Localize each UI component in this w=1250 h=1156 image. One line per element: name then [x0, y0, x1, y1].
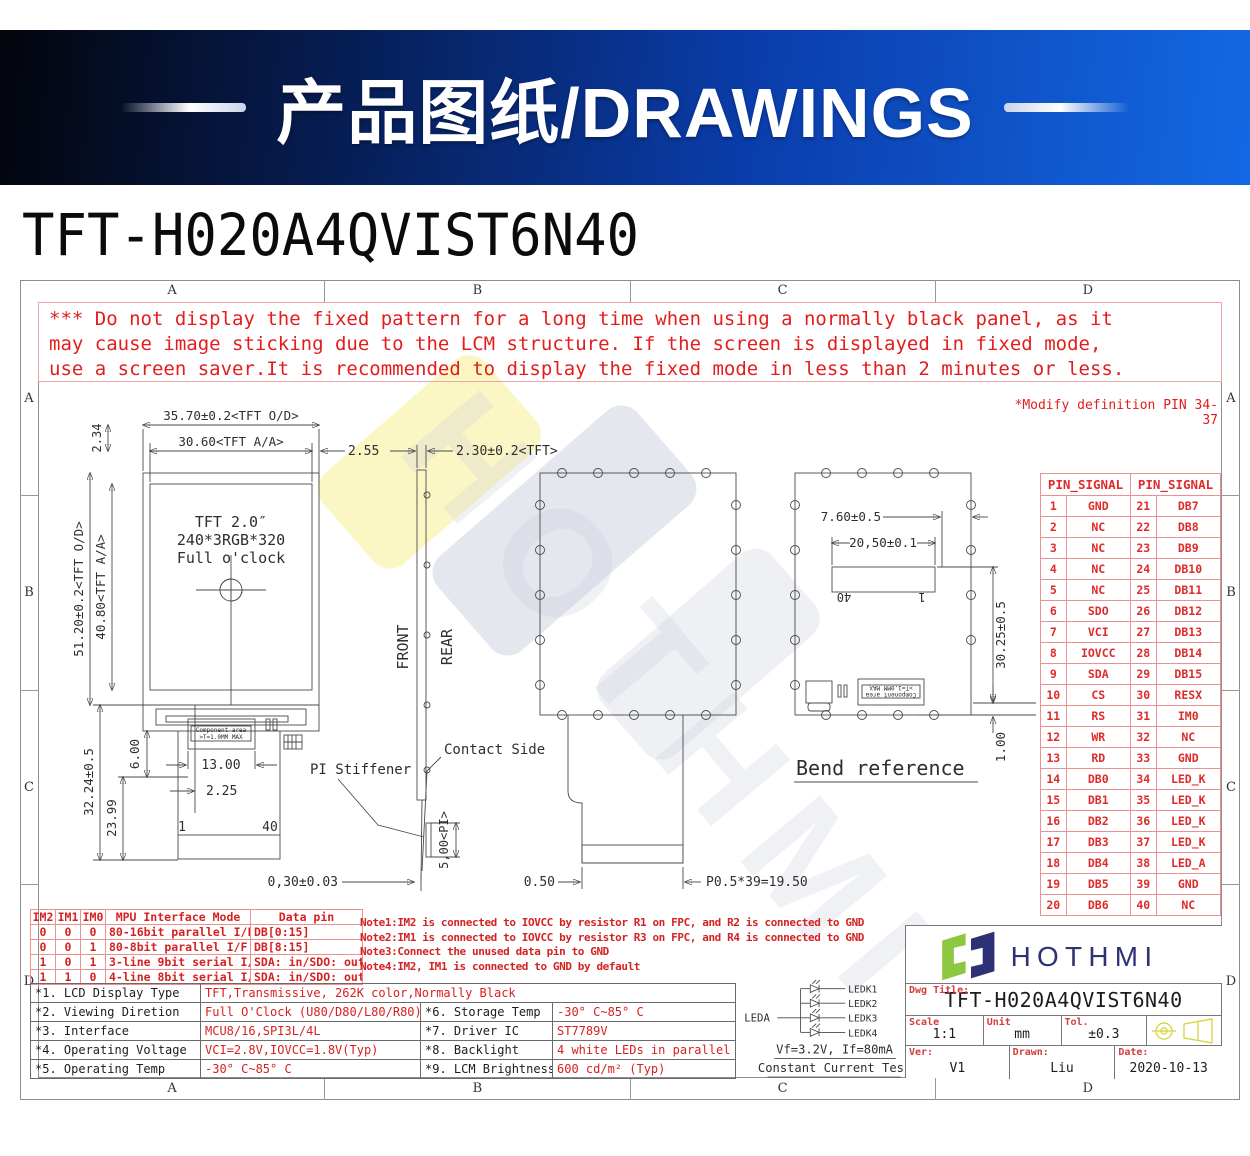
led-diode-icon — [810, 1014, 819, 1022]
pin-table-row: 3NC23DB9 — [1041, 538, 1221, 559]
spec-row: *1. LCD Display TypeTFT,Transmissive, 26… — [31, 984, 736, 1003]
mode-cell: 80-8bit parallel I/F — [106, 940, 251, 955]
spec-label: *4. Operating Voltage — [31, 1041, 201, 1060]
pin-number-cell: 33 — [1130, 748, 1156, 769]
pin-table-row: 14DB034LED_K — [1041, 769, 1221, 790]
pin-signal-cell: DB11 — [1156, 580, 1220, 601]
led-anode-label: LEDA — [744, 1012, 770, 1025]
projection-symbol-icon — [1151, 1018, 1217, 1044]
pin-number-cell: 11 — [1041, 706, 1067, 727]
mode-cell: 0 — [81, 925, 106, 940]
pin-signal-cell: NC — [1066, 559, 1130, 580]
pin-number-cell: 21 — [1130, 496, 1156, 517]
mode-cell: SDA: in/SDO: out — [251, 955, 363, 970]
mode-table-body: 00080-16bit parallel I/FDB[0:15]00180-8b… — [31, 925, 363, 985]
pin-signal-cell: LED_A — [1156, 853, 1220, 874]
spec-label: *6. Storage Temp — [421, 1003, 553, 1022]
dim-225: 2.25 — [206, 784, 237, 799]
pin-signal-cell: GND — [1066, 496, 1130, 517]
spec-value: VCI=2.8V,IOVCC=1.8V(Typ) — [201, 1041, 421, 1060]
pin-signal-cell: IM0 — [1156, 706, 1220, 727]
spec-value: TFT,Transmissive, 262K color,Normally Bl… — [201, 984, 736, 1003]
pin-signal-cell: NC — [1066, 580, 1130, 601]
pin-number-cell: 19 — [1041, 874, 1067, 895]
spec-value: 4 white LEDs in parallel — [553, 1041, 736, 1060]
dim-050: 0.50 — [524, 875, 555, 890]
frame-col-label: B — [325, 1078, 630, 1100]
pin-table-row: 8IOVCC28DB14 — [1041, 643, 1221, 664]
pin-table-row: 1GND21DB7 — [1041, 496, 1221, 517]
pin-number-cell: 5 — [1041, 580, 1067, 601]
pin-signal-cell: DB9 — [1156, 538, 1220, 559]
dim-100: 1.00 — [993, 732, 1008, 762]
frame-top-ruler: A B C D — [20, 280, 1240, 302]
pin-number-cell: 27 — [1130, 622, 1156, 643]
pin-table-row: 5NC25DB11 — [1041, 580, 1221, 601]
pin-signal-cell: GND — [1156, 874, 1220, 895]
pin-signal-cell: DB1 — [1066, 790, 1130, 811]
spec-row: *4. Operating VoltageVCI=2.8V,IOVCC=1.8V… — [31, 1041, 736, 1060]
led-diode-icon — [810, 999, 819, 1007]
dwg-title-label: Dwg Title: — [909, 985, 969, 996]
mode-table-row: 00180-8bit parallel I/FDB[8:15] — [31, 940, 363, 955]
pin-table-body: 1GND21DB72NC22DB83NC23DB94NC24DB105NC25D… — [1041, 496, 1221, 916]
pin-signal-cell: DB2 — [1066, 811, 1130, 832]
brand-logo: HOTHMI — [920, 928, 1220, 982]
brand-row: HOTHMI — [906, 926, 1222, 984]
mode-header: Data pin — [251, 910, 363, 925]
pin-table-row: 9SDA29DB15 — [1041, 664, 1221, 685]
scale-label: Scale — [909, 1017, 939, 1028]
pin-signal-cell: LED_K — [1156, 790, 1220, 811]
mode-cell: 0 — [56, 955, 81, 970]
pin-table-header: PIN_SIGNAL — [1130, 474, 1220, 496]
led-cathode-label: LEDK3 — [848, 1014, 877, 1025]
side-view: FRONT REAR 2.30±0.2<TFT> PI Stiffener 5,… — [268, 444, 558, 891]
pin40-label: 40 — [262, 820, 278, 835]
pin-signal-cell: DB6 — [1066, 895, 1130, 916]
spec-row: *2. Viewing DiretionFull O'Clock (U80/D8… — [31, 1003, 736, 1022]
spec-label: *3. Interface — [31, 1022, 201, 1041]
pin-signal-cell: WR — [1066, 727, 1130, 748]
pin-table-row: 2NC22DB8 — [1041, 517, 1221, 538]
pin-number-cell: 17 — [1041, 832, 1067, 853]
mode-cell: DB[0:15] — [251, 925, 363, 940]
pin-number-cell: 40 — [1130, 895, 1156, 916]
warning-box: *** Do not display the fixed pattern for… — [38, 302, 1222, 382]
pin-table-row: 10CS30RESX — [1041, 685, 1221, 706]
pin-number-cell: 13 — [1041, 748, 1067, 769]
page: { "banner": {"title": "产品图纸/DRAWINGS"}, … — [0, 0, 1250, 1156]
pin-number-cell: 29 — [1130, 664, 1156, 685]
mode-cell: 1 — [81, 940, 106, 955]
dim-thickness: 2.30±0.2<TFT> — [456, 444, 558, 459]
pin-number-cell: 25 — [1130, 580, 1156, 601]
frame-col-label: D — [936, 1078, 1240, 1100]
pin-number-cell: 14 — [1041, 769, 1067, 790]
dim-height-od: 51.20±0.2<TFT O/D> — [71, 521, 86, 656]
date-cell: Date: 2020-10-13 — [1115, 1046, 1222, 1079]
led-test-title: Constant Current Test — [758, 1061, 903, 1075]
dim-234: 2.34 — [90, 424, 104, 453]
spec-label: *1. LCD Display Type — [31, 984, 201, 1003]
dim-600: 6.00 — [127, 739, 142, 769]
tol-label: Tol. — [1065, 1017, 1089, 1028]
tol-cell: Tol. ±0.3 — [1062, 1016, 1148, 1045]
spec-label: *9. LCM Brightness — [421, 1060, 553, 1079]
mode-cell: DB[8:15] — [251, 940, 363, 955]
pin-table-row: 15DB135LED_K — [1041, 790, 1221, 811]
frame-row-label: C — [20, 691, 38, 885]
pin-table-row: 13RD33GND — [1041, 748, 1221, 769]
projection-cell — [1147, 1016, 1222, 1045]
frame-col-label: A — [20, 280, 325, 302]
pin-number-cell: 32 — [1130, 727, 1156, 748]
dim-width-aa: 30.60<TFT A/A> — [178, 434, 283, 449]
mode-cell: 3-line 9bit serial I/F — [106, 955, 251, 970]
frame-row-label: A — [1222, 302, 1240, 496]
svg-text:>T=1.0MM MAX: >T=1.0MM MAX — [199, 734, 243, 741]
pin-number-cell: 18 — [1041, 853, 1067, 874]
warning-line: may cause image sticking due to the LCM … — [49, 332, 1211, 357]
pin-table-row: 12WR32NC — [1041, 727, 1221, 748]
pin-number-cell: 23 — [1130, 538, 1156, 559]
mode-cell: 0 — [56, 925, 81, 940]
dim-tip: 0,30±0.03 — [268, 875, 338, 890]
pin-signal-cell: DB7 — [1156, 496, 1220, 517]
led-diodes: LEDK1LEDK2LEDK3LEDK4 — [801, 980, 878, 1039]
dim-width-od: 35.70±0.2<TFT O/D> — [163, 408, 298, 423]
pin-signal-cell: RESX — [1156, 685, 1220, 706]
brand-name: HOTHMI — [1011, 940, 1159, 971]
logo-green-shape — [942, 933, 965, 980]
frame-col-label: B — [325, 280, 630, 302]
drawn-cell: Drawn: Liu — [1010, 1046, 1116, 1079]
pin-table-row: 6SDO26DB12 — [1041, 601, 1221, 622]
pin-number-cell: 22 — [1130, 517, 1156, 538]
note-line: Note4:IM2, IM1 is connected to GND by de… — [360, 960, 855, 975]
pin-number-cell: 24 — [1130, 559, 1156, 580]
mode-table-row: 1013-line 9bit serial I/FSDA: in/SDO: ou… — [31, 955, 363, 970]
dim-3224: 32.24±0.5 — [81, 748, 96, 816]
pin-signal-cell: CS — [1066, 685, 1130, 706]
pin-number-cell: 10 — [1041, 685, 1067, 706]
bend-pin1: 1 — [918, 590, 925, 604]
mode-cell: 1 — [31, 955, 56, 970]
warning-line: use a screen saver.It is recommended to … — [49, 357, 1211, 382]
pin-signal-table: PIN_SIGNAL PIN_SIGNAL 1GND21DB72NC22DB83… — [1040, 473, 1221, 916]
pin-signal-cell: DB4 — [1066, 853, 1130, 874]
frame-row-label: D — [1222, 885, 1240, 1078]
spec-label: *2. Viewing Diretion — [31, 1003, 201, 1022]
pin-number-cell: 28 — [1130, 643, 1156, 664]
logo-navy-shape — [971, 931, 994, 978]
mode-header: MPU Interface Mode — [106, 910, 251, 925]
pin-signal-cell: NC — [1066, 538, 1130, 559]
pin-number-cell: 1 — [1041, 496, 1067, 517]
frame-col-label: D — [936, 280, 1240, 302]
page-title: TFT-H020A4QVIST6N40 — [22, 204, 639, 266]
note-line: Note2:IM1 is connected to IOVCC by resis… — [360, 931, 855, 946]
panel-res-text: 240*3RGB*320 — [177, 531, 285, 549]
spec-row: *5. Operating Temp-30° C~85° C*9. LCM Br… — [31, 1060, 736, 1079]
pin-number-cell: 34 — [1130, 769, 1156, 790]
mode-cell: 80-16bit parallel I/F — [106, 925, 251, 940]
frame-bottom-ruler: A B C D — [20, 1078, 1240, 1100]
pin-signal-cell: DB14 — [1156, 643, 1220, 664]
dim-gap-255: 2.55 — [348, 444, 379, 459]
mode-table-row: 00080-16bit parallel I/FDB[0:15] — [31, 925, 363, 940]
pin-table-row: 4NC24DB10 — [1041, 559, 1221, 580]
dim-2050: 20,50±0.1 — [849, 535, 917, 550]
technical-drawing: TFT 2.0″ 240*3RGB*320 Full o'clock 35.70… — [38, 385, 1038, 907]
pin-number-cell: 26 — [1130, 601, 1156, 622]
spec-table-body: *1. LCD Display TypeTFT,Transmissive, 26… — [31, 984, 736, 1079]
spec-value: -30° C~85° C — [553, 1003, 736, 1022]
spec-label: *5. Operating Temp — [31, 1060, 201, 1079]
pin-signal-cell: NC — [1066, 517, 1130, 538]
dim-pitch: P0.5*39=19.50 — [706, 875, 808, 890]
pin-table-header: PIN_SIGNAL — [1041, 474, 1131, 496]
dim-1300: 13.00 — [201, 758, 240, 773]
led-cathode-label: LEDK1 — [848, 985, 877, 996]
bend-view: 40 1 20,50±0.1 7.60±0.5 30.25±0.5 1.00 C… — [791, 469, 1037, 783]
spec-value: 600 cd/m² (Typ) — [553, 1060, 736, 1079]
pin-signal-cell: DB10 — [1156, 559, 1220, 580]
frame-row-label: B — [20, 496, 38, 690]
led-cathode-label: LEDK4 — [848, 1028, 877, 1039]
led-cathode-label: LEDK2 — [848, 999, 877, 1010]
pin-number-cell: 16 — [1041, 811, 1067, 832]
pin-signal-cell: RS — [1066, 706, 1130, 727]
mode-cell: 1 — [81, 955, 106, 970]
center-mark-icon — [220, 579, 231, 590]
panel-size-text: TFT 2.0″ — [195, 513, 267, 531]
dim-pi: 5,00<PI> — [437, 811, 451, 869]
title-block: HOTHMI Dwg Title: TFT-H020A4QVIST6N40 Sc… — [905, 925, 1222, 1078]
pin-number-cell: 2 — [1041, 517, 1067, 538]
mode-cell: 0 — [31, 940, 56, 955]
spec-label: *7. Driver IC — [421, 1022, 553, 1041]
mode-cell: 0 — [56, 940, 81, 955]
pin-table-row: 17DB337LED_K — [1041, 832, 1221, 853]
pin-table-row: 19DB539GND — [1041, 874, 1221, 895]
pin-signal-cell: DB8 — [1156, 517, 1220, 538]
frame-row-label: B — [1222, 496, 1240, 690]
version-cell: Ver: V1 — [906, 1046, 1010, 1079]
pin-table-row: 16DB236LED_K — [1041, 811, 1221, 832]
note-line: Note3:Connect the unused data pin to GND — [360, 945, 855, 960]
pin-signal-cell: NC — [1156, 727, 1220, 748]
pin-number-cell: 38 — [1130, 853, 1156, 874]
pin-number-cell: 35 — [1130, 790, 1156, 811]
frame-row-label: C — [1222, 691, 1240, 885]
pin-signal-cell: DB15 — [1156, 664, 1220, 685]
pin-table-row: 7VCI27DB13 — [1041, 622, 1221, 643]
frame-col-label: A — [20, 1078, 325, 1100]
svg-text:>T=1.0MM MAX: >T=1.0MM MAX — [869, 684, 913, 691]
front-view: TFT 2.0″ 240*3RGB*320 Full o'clock 35.70… — [71, 408, 379, 860]
pin-signal-cell: DB0 — [1066, 769, 1130, 790]
warning-line: *** Do not display the fixed pattern for… — [49, 307, 1211, 332]
rear-label: REAR — [438, 628, 456, 665]
led-diode-icon — [810, 985, 819, 993]
pin-number-cell: 9 — [1041, 664, 1067, 685]
pin-signal-cell: LED_K — [1156, 811, 1220, 832]
pin-number-cell: 4 — [1041, 559, 1067, 580]
pin-number-cell: 20 — [1041, 895, 1067, 916]
pin-signal-cell: DB3 — [1066, 832, 1130, 853]
component-area-label: Component area — [196, 727, 247, 734]
contact-side-label: Contact Side — [444, 742, 545, 758]
dim-3025: 30.25±0.5 — [993, 601, 1008, 669]
pin-signal-cell: DB12 — [1156, 601, 1220, 622]
pin-number-cell: 15 — [1041, 790, 1067, 811]
frame-col-label: C — [631, 1078, 936, 1100]
pin-number-cell: 3 — [1041, 538, 1067, 559]
banner-right-dash — [1004, 103, 1129, 112]
pin-number-cell: 6 — [1041, 601, 1067, 622]
pin-signal-cell: VCI — [1066, 622, 1130, 643]
led-test-values: Vf=3.2V, If=80mA — [776, 1043, 893, 1057]
spec-label: *8. Backlight — [421, 1041, 553, 1060]
pin1-label: 1 — [178, 820, 186, 835]
rear-view: 0.50 P0.5*39=19.50 — [524, 469, 808, 891]
pin-number-cell: 37 — [1130, 832, 1156, 853]
backlight-circuit: LEDA LEDK1LEDK2LEDK3LEDK4 Vf=3.2V, If=80… — [738, 977, 903, 1080]
note-line: Note1:IM2 is connected to IOVCC by resis… — [360, 916, 855, 931]
date-label: Date: — [1118, 1047, 1148, 1058]
pin-number-cell: 30 — [1130, 685, 1156, 706]
pin-number-cell: 8 — [1041, 643, 1067, 664]
unit-cell: Unit mm — [984, 1016, 1062, 1045]
banner-title: 产品图纸/DRAWINGS — [276, 57, 973, 158]
scale-cell: Scale 1:1 — [906, 1016, 984, 1045]
pin-signal-cell: SDO — [1066, 601, 1130, 622]
pin-table-row: 18DB438LED_A — [1041, 853, 1221, 874]
pin-signal-cell: NC — [1156, 895, 1220, 916]
dim-height-aa: 40.80<TFT A/A> — [93, 534, 108, 639]
mode-header: IM2 — [31, 910, 56, 925]
frame-row-label: A — [20, 302, 38, 496]
pin-signal-cell: RD — [1066, 748, 1130, 769]
pin-signal-cell: LED_K — [1156, 769, 1220, 790]
interface-notes: Note1:IM2 is connected to IOVCC by resis… — [360, 916, 855, 974]
front-label: FRONT — [394, 624, 412, 669]
mode-cell: 0 — [31, 925, 56, 940]
unit-label: Unit — [987, 1017, 1011, 1028]
pin-number-cell: 39 — [1130, 874, 1156, 895]
pin-table-row: 20DB640NC — [1041, 895, 1221, 916]
bend-pin40: 40 — [837, 590, 851, 604]
pin-number-cell: 7 — [1041, 622, 1067, 643]
frame-right-ruler: A B C D — [1222, 302, 1240, 1078]
bend-reference-label: Bend reference — [796, 756, 965, 780]
pin-signal-cell: LED_K — [1156, 832, 1220, 853]
pi-stiffener-label: PI Stiffener — [310, 762, 411, 778]
banner-left-dash — [121, 103, 246, 112]
pin-signal-cell: DB13 — [1156, 622, 1220, 643]
dim-2399: 23.99 — [104, 799, 119, 837]
spec-value: Full O'Clock (U80/D80/L80/R80) — [201, 1003, 421, 1022]
dwg-title-cell: Dwg Title: TFT-H020A4QVIST6N40 — [906, 984, 1222, 1015]
pin-signal-cell: IOVCC — [1066, 643, 1130, 664]
pin-signal-cell: GND — [1156, 748, 1220, 769]
led-diode-icon — [810, 1029, 819, 1037]
spec-row: *3. InterfaceMCU8/16,SPI3L/4L*7. Driver … — [31, 1022, 736, 1041]
dim-760: 7.60±0.5 — [821, 509, 881, 524]
frame-col-label: C — [631, 280, 936, 302]
spec-table: *1. LCD Display TypeTFT,Transmissive, 26… — [30, 983, 736, 1079]
mode-header: IM0 — [81, 910, 106, 925]
pin-number-cell: 36 — [1130, 811, 1156, 832]
interface-mode-table: IM2 IM1 IM0 MPU Interface Mode Data pin … — [30, 909, 363, 985]
pin-number-cell: 31 — [1130, 706, 1156, 727]
header-banner: 产品图纸/DRAWINGS — [0, 30, 1250, 185]
pin-table-row: 11RS31IM0 — [1041, 706, 1221, 727]
bend-component-label: Component area — [865, 691, 916, 698]
spec-value: MCU8/16,SPI3L/4L — [201, 1022, 421, 1041]
pin-signal-cell: SDA — [1066, 664, 1130, 685]
pin-number-cell: 12 — [1041, 727, 1067, 748]
drawn-label: Drawn: — [1013, 1047, 1049, 1058]
pin-signal-cell: DB5 — [1066, 874, 1130, 895]
version-label: Ver: — [909, 1047, 933, 1058]
mode-header: IM1 — [56, 910, 81, 925]
spec-value: ST7789V — [553, 1022, 736, 1041]
spec-value: -30° C~85° C — [201, 1060, 421, 1079]
